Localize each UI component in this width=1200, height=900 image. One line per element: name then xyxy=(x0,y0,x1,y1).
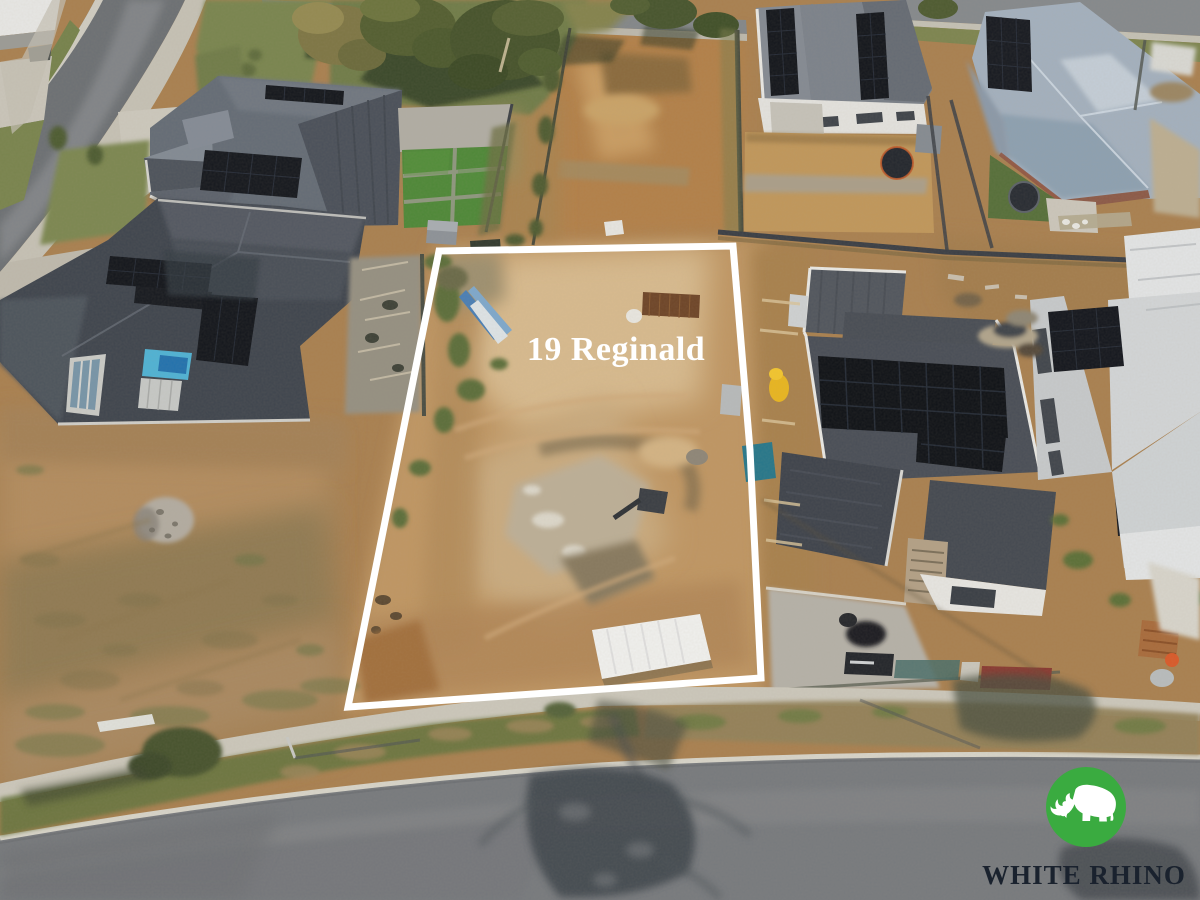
svg-text:WHITE RHINO: WHITE RHINO xyxy=(982,860,1186,890)
svg-text:19 Reginald: 19 Reginald xyxy=(527,331,705,368)
